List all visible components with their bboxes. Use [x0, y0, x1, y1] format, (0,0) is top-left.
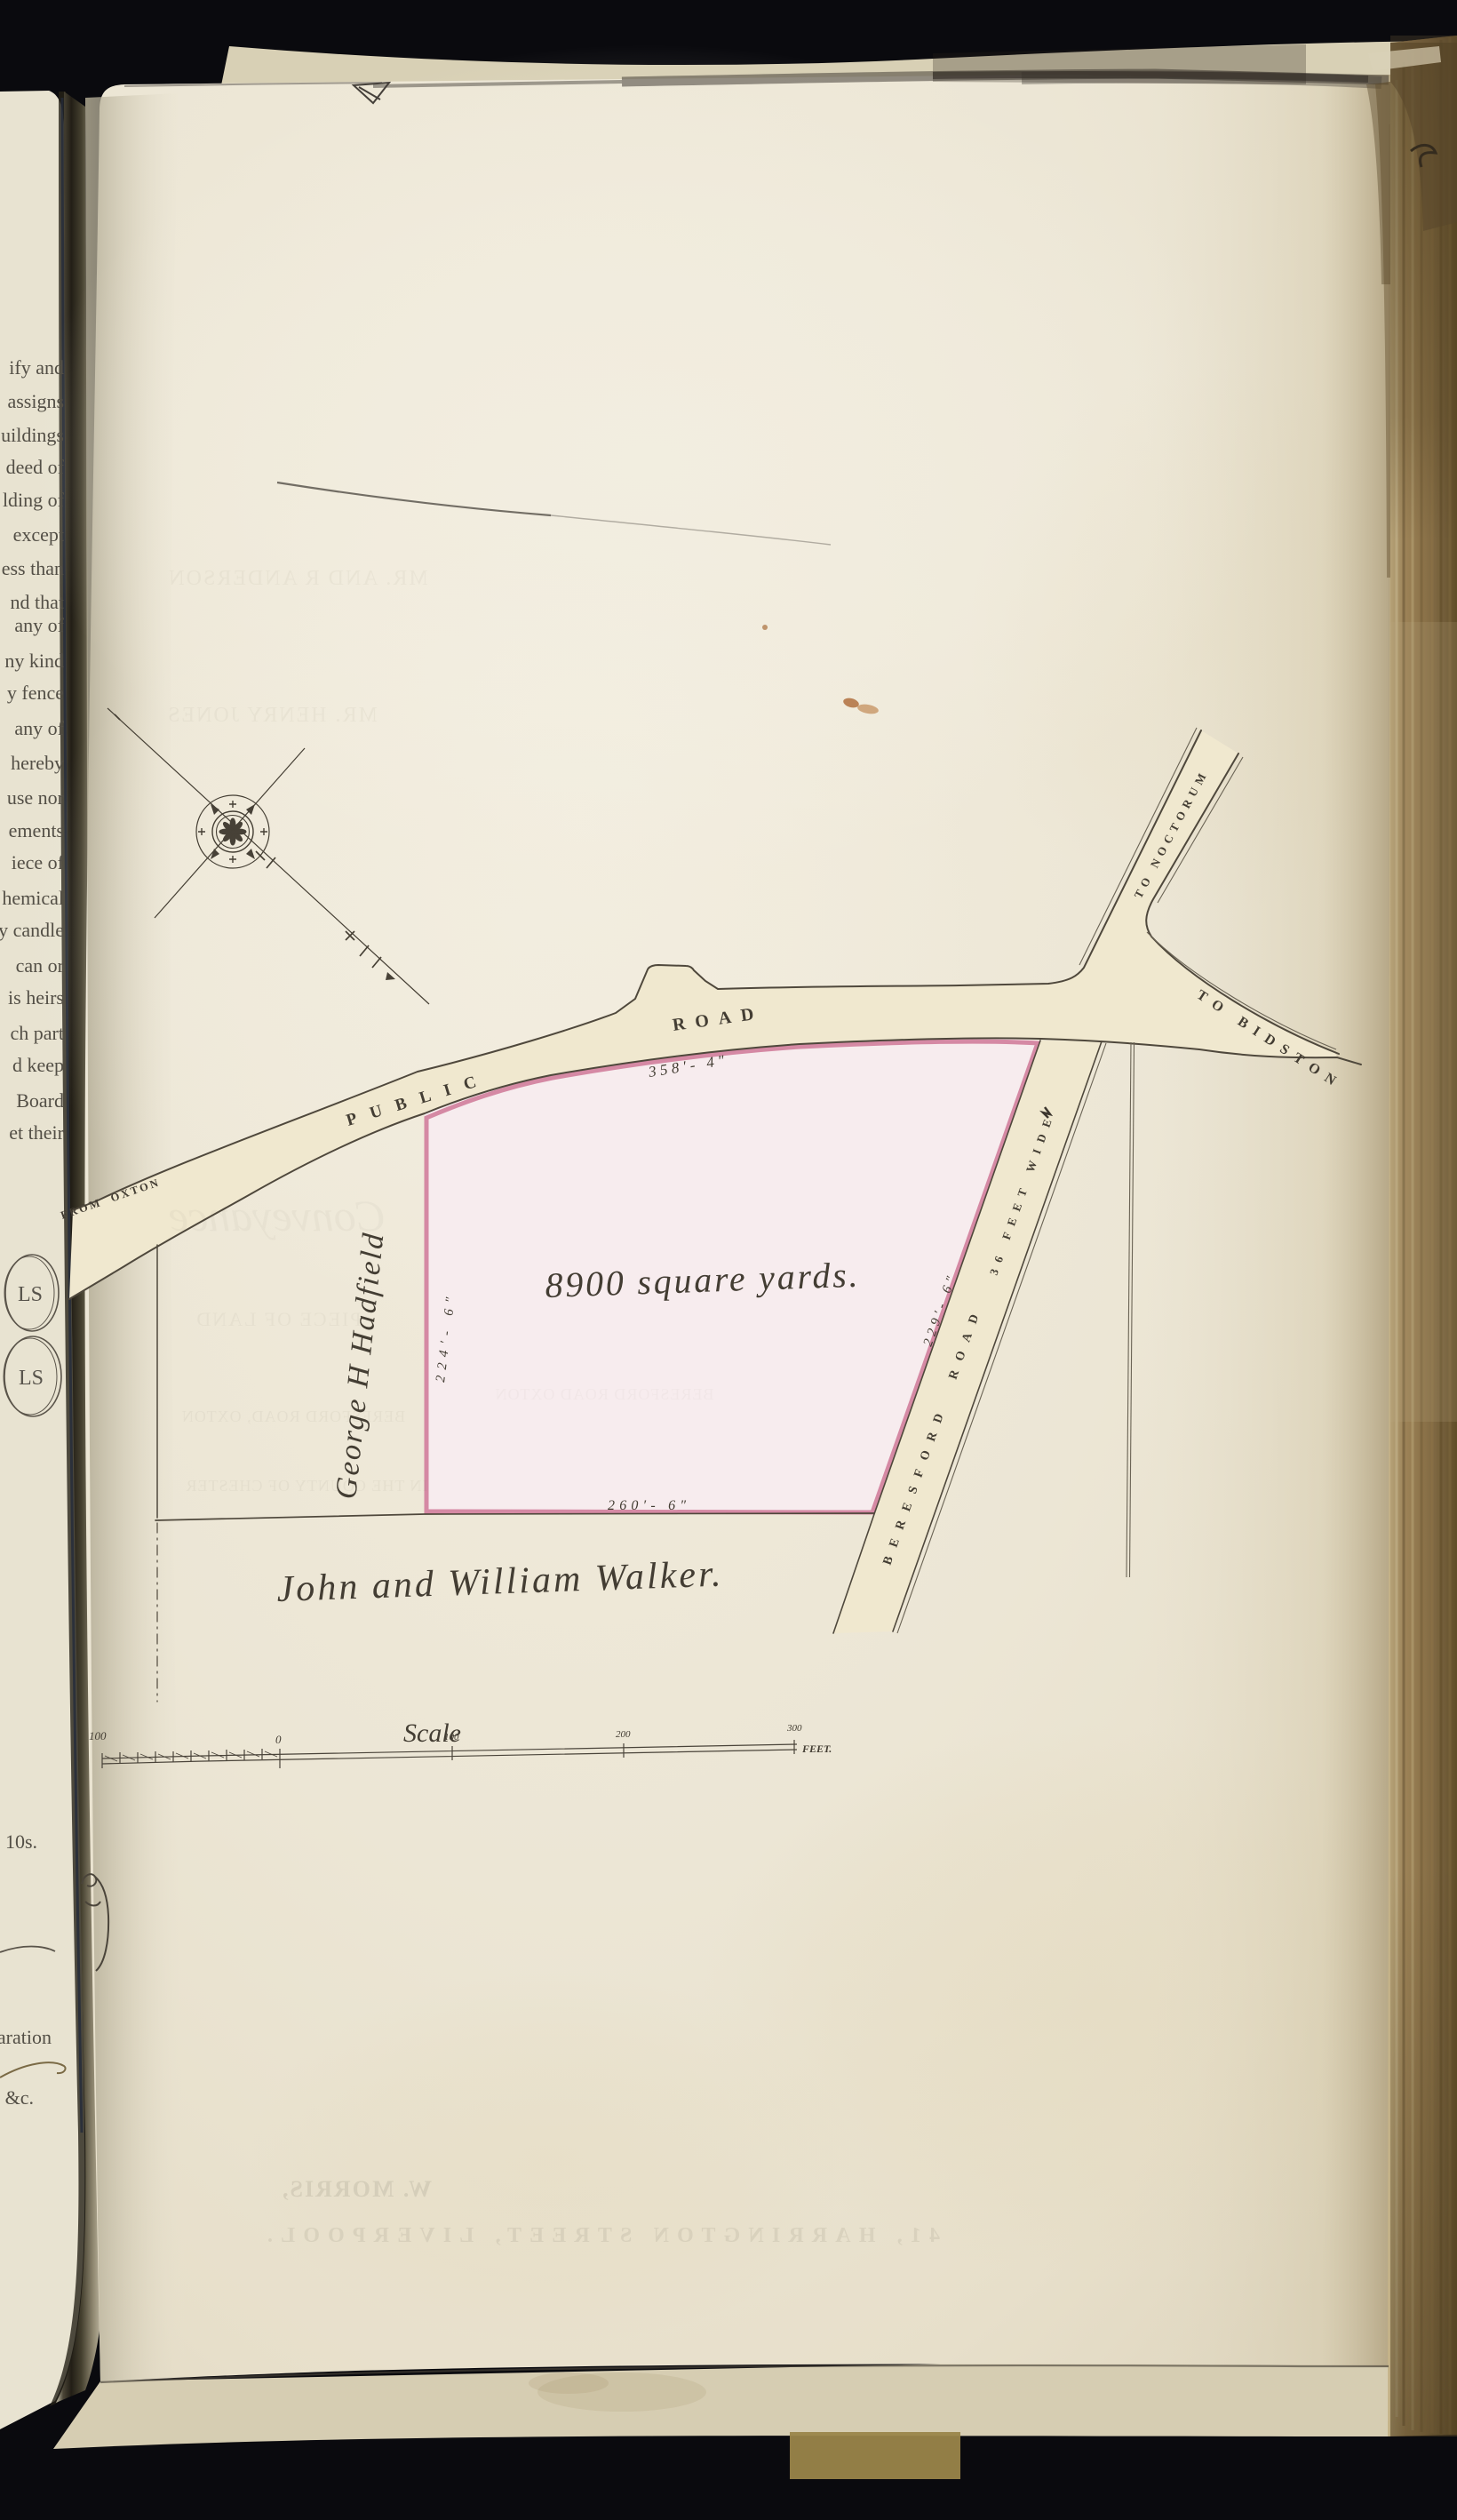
svg-text:100: 100: [444, 1732, 459, 1742]
svg-text:iece of: iece of: [12, 851, 65, 873]
svg-text:et their: et their: [9, 1121, 64, 1144]
svg-text:&c.: &c.: [5, 2086, 34, 2109]
svg-text:MR. HENRY JONES: MR. HENRY JONES: [166, 704, 378, 727]
svg-text:lding of: lding of: [3, 489, 65, 511]
svg-text:W. MORRIS,: W. MORRIS,: [281, 2176, 432, 2202]
svg-text:200: 200: [616, 1729, 631, 1740]
svg-text:MR. AND R ANDERSON: MR. AND R ANDERSON: [167, 567, 427, 590]
svg-text:d keep: d keep: [12, 1054, 64, 1076]
svg-text:hereby: hereby: [11, 752, 64, 774]
svg-text:LS: LS: [19, 1367, 44, 1390]
svg-text:ess than: ess than: [2, 557, 64, 579]
svg-text:IN THE COUNTY OF CHESTER: IN THE COUNTY OF CHESTER: [185, 1477, 427, 1495]
svg-text:y fence: y fence: [7, 682, 64, 704]
svg-text:uildings: uildings: [1, 424, 64, 446]
svg-text:FEET.: FEET.: [801, 1742, 832, 1755]
svg-text:except: except: [13, 523, 64, 546]
svg-text:10s.: 10s.: [5, 1830, 37, 1853]
svg-text:ny kind: ny kind: [4, 650, 64, 672]
svg-text:can or: can or: [16, 954, 65, 977]
svg-text:is heirs: is heirs: [8, 986, 64, 1009]
svg-text:BERESFORD ROAD, OXTON: BERESFORD ROAD, OXTON: [181, 1408, 405, 1425]
svg-text:Conveyance: Conveyance: [169, 1191, 386, 1240]
svg-text:ify and: ify and: [9, 356, 64, 379]
svg-text:use nor: use nor: [7, 786, 65, 809]
svg-text:PIECE OF LAND: PIECE OF LAND: [195, 1308, 361, 1330]
svg-text:ements: ements: [9, 819, 64, 841]
svg-text:ch part: ch part: [11, 1022, 64, 1044]
svg-text:aration: aration: [0, 2026, 52, 2048]
svg-text:41, HARRINGTON STREET, LIVERPO: 41, HARRINGTON STREET, LIVERPOOL.: [265, 2224, 940, 2247]
svg-text:hemical: hemical: [2, 887, 64, 909]
svg-text:y candle: y candle: [0, 919, 64, 941]
svg-text:any of: any of: [14, 717, 64, 739]
svg-text:100: 100: [89, 1729, 107, 1742]
svg-text:0: 0: [275, 1733, 282, 1746]
svg-text:deed of: deed of: [6, 456, 65, 478]
svg-text:LS: LS: [18, 1283, 43, 1306]
svg-text:BERESFORD ROAD OXTON: BERESFORD ROAD OXTON: [495, 1385, 714, 1403]
svg-text:Board: Board: [16, 1089, 64, 1112]
svg-text:any of: any of: [14, 614, 64, 636]
svg-text:nd that: nd that: [11, 591, 65, 613]
svg-text:300: 300: [786, 1723, 802, 1734]
svg-text:assigns: assigns: [7, 390, 64, 412]
